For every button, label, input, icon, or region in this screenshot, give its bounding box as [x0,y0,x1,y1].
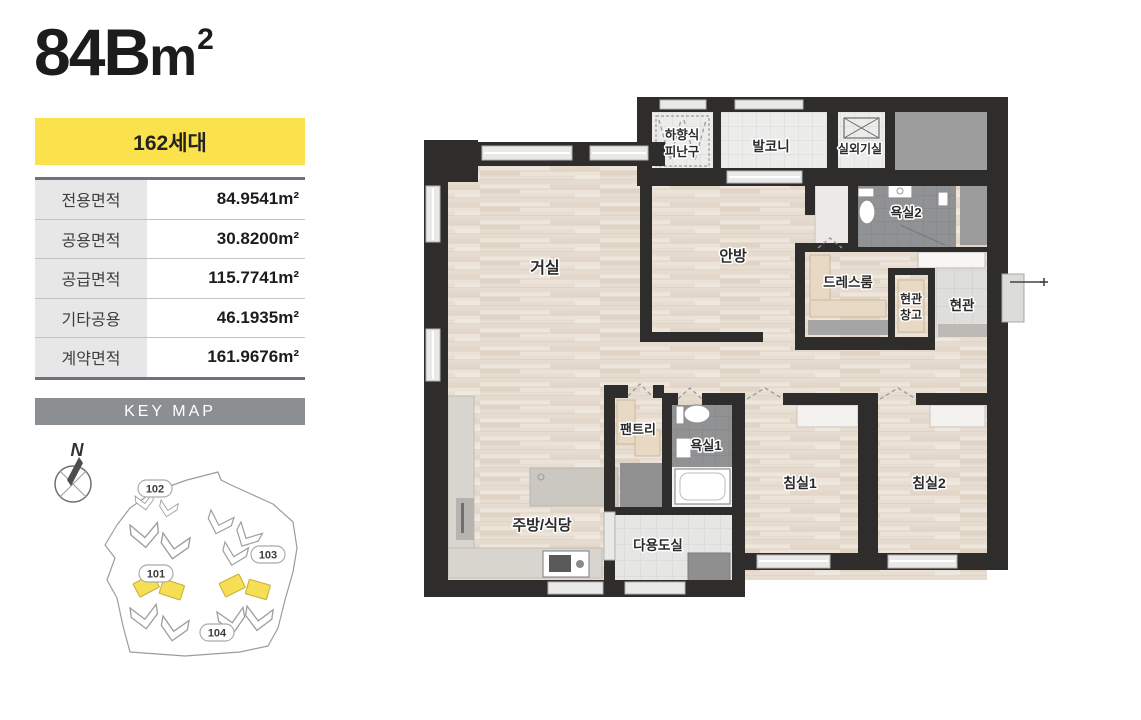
north-compass-icon: N [55,440,91,502]
households-badge: 162세대 [35,118,305,165]
room-label-entry-storage: 현관 [900,291,922,306]
row-value: 115.7741m² [147,259,305,298]
room-label-utility: 다용도실 [633,538,683,553]
room-entry-storage [895,275,928,337]
row-label: 기타공용 [35,299,147,338]
room-label-master: 안방 [719,247,747,265]
row-value: 84.9541m² [147,180,305,219]
room-label-bed1: 침실1 [783,475,817,491]
room-bath1 [672,405,732,507]
table-row: 공급면적 115.7741m² [35,259,305,299]
table-row: 공용면적 30.8200m² [35,220,305,260]
master-closet [815,182,849,244]
row-label: 공급면적 [35,259,147,298]
area-info-table: 전용면적 84.9541m² 공용면적 30.8200m² 공급면적 115.7… [35,177,305,380]
svg-text:103: 103 [259,550,277,562]
room-label-dress: 드레스룸 [823,275,873,290]
room-label-living: 거실 [530,259,559,277]
room-label-bath1: 욕실1 [690,438,721,453]
table-row: 전용면적 84.9541m² [35,180,305,220]
room-label-balcony: 발코니 [752,138,789,154]
bed1-closet [797,405,858,427]
svg-text:피난구: 피난구 [665,144,700,159]
room-label-bed2: 침실2 [912,475,946,491]
households-text: 162세대 [133,127,207,157]
floor-plan: 하향식 피난구 발코니 실외기실 거실 안방 욕실2 드레스룸 현관 창고 현관… [410,80,1060,640]
svg-text:창고: 창고 [900,307,922,322]
unit-type-text: 84B [34,15,149,89]
keymap-header: KEY MAP [35,398,305,425]
room-label-pantry: 팬트리 [620,422,656,437]
row-value: 30.8200m² [147,220,305,259]
row-label: 계약면적 [35,338,147,377]
page-title: 84Bm2 [34,14,213,90]
bed2-closet [930,405,985,427]
room-outdoor-unit [838,112,885,170]
row-value: 161.9676m² [147,338,305,377]
row-value: 46.1935m² [147,299,305,338]
pantry-storage-block [620,463,667,507]
keymap-title: KEY MAP [124,403,216,421]
room-label-kitchen: 주방/식당 [512,516,572,534]
room-dressroom [808,252,888,337]
room-label-entrance: 현관 [950,297,975,313]
room-label-bath2: 욕실2 [890,205,921,220]
unit-sup-text: 2 [197,23,214,56]
svg-text:102: 102 [146,484,164,496]
svg-text:N: N [71,440,85,460]
room-label-outdoor-unit: 실외기실 [838,141,882,156]
table-row: 기타공용 46.1935m² [35,299,305,339]
row-label: 공용면적 [35,220,147,259]
row-label: 전용면적 [35,180,147,219]
keymap: N [35,430,315,670]
room-label-hatch: 하향식 [665,127,700,142]
page: 84Bm2 162세대 전용면적 84.9541m² 공용면적 30.8200m… [0,0,1141,720]
svg-text:101: 101 [147,569,165,581]
table-row: 계약면적 161.9676m² [35,338,305,377]
common-core-block [895,112,1003,170]
unit-m-text: m [149,27,196,87]
svg-text:104: 104 [208,628,227,640]
